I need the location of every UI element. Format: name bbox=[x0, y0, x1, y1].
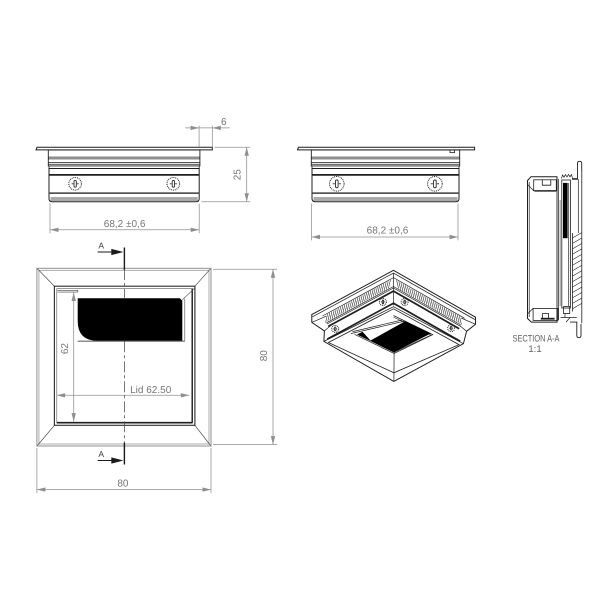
svg-text:SECTION A-A: SECTION A-A bbox=[513, 334, 561, 345]
svg-text:A: A bbox=[98, 449, 104, 459]
svg-text:A: A bbox=[98, 241, 104, 251]
svg-text:80: 80 bbox=[259, 350, 270, 362]
svg-text:80: 80 bbox=[117, 479, 129, 490]
svg-text:62: 62 bbox=[60, 343, 71, 355]
svg-text:1:1: 1:1 bbox=[528, 344, 541, 355]
svg-text:25: 25 bbox=[233, 169, 244, 181]
svg-text:68,2 ±0,6: 68,2 ±0,6 bbox=[367, 226, 409, 237]
svg-text:6: 6 bbox=[221, 117, 227, 128]
svg-text:68,2 ±0,6: 68,2 ±0,6 bbox=[104, 219, 146, 230]
svg-text:Lid 62.50: Lid 62.50 bbox=[130, 385, 172, 396]
